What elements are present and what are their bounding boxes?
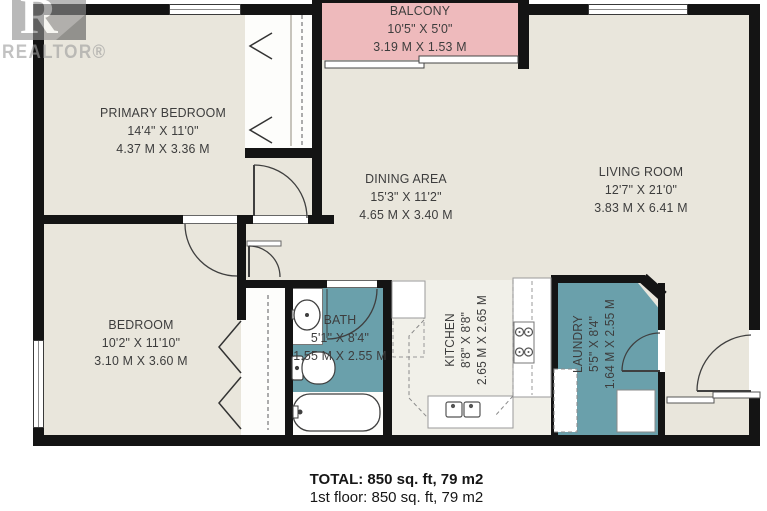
realtor-watermark: R REALTOR® bbox=[2, 0, 118, 64]
wall bbox=[518, 0, 529, 69]
room-dim-m: 3.83 M X 6.41 M bbox=[560, 199, 722, 217]
room-name: BALCONY bbox=[339, 2, 501, 20]
total-area: TOTAL: 850 sq. ft, 79 m2 bbox=[26, 471, 767, 489]
wall bbox=[749, 395, 760, 446]
room-dim-m: 4.65 M X 3.40 M bbox=[325, 206, 487, 224]
first-floor-area: 1st floor: 850 sq. ft, 79 m2 bbox=[26, 489, 767, 507]
room-name: DINING AREA bbox=[325, 170, 487, 188]
room-name: BEDROOM bbox=[60, 316, 222, 334]
room-dim-m: 4.37 M X 3.36 M bbox=[54, 140, 273, 158]
room-name: LIVING ROOM bbox=[560, 163, 722, 181]
wall bbox=[749, 4, 760, 330]
room-dim-m: 1.55 M X 2.55 M bbox=[274, 347, 407, 365]
wall bbox=[658, 372, 665, 435]
floorplan-canvas: BALCONY 10'5" X 5'0" 3.19 M X 1.53 M PRI… bbox=[0, 0, 767, 511]
room-dim-ft: 5'5" X 8'4" bbox=[586, 287, 602, 401]
wall bbox=[33, 435, 760, 446]
wall bbox=[551, 275, 558, 435]
room-label-kitchen: KITCHEN 8'8" X 8'8" 2.65 M X 2.65 M bbox=[442, 283, 490, 397]
entry-door-opening bbox=[749, 330, 760, 395]
window bbox=[169, 4, 241, 15]
wall bbox=[237, 215, 246, 320]
laundry-door-opening bbox=[658, 330, 665, 372]
room-dim-m: 1.64 M X 2.55 M bbox=[602, 287, 618, 401]
wall bbox=[551, 275, 645, 283]
window bbox=[588, 4, 688, 15]
realtor-logo-r: R bbox=[20, 0, 58, 40]
realtor-logo-triangle bbox=[56, 14, 86, 40]
room-dim-ft: 15'3" X 11'2" bbox=[325, 188, 487, 206]
room-dim-m: 3.10 M X 3.60 M bbox=[60, 352, 222, 370]
room-dim-m: 3.19 M X 1.53 M bbox=[339, 38, 501, 56]
room-label-living-room: LIVING ROOM 12'7" X 21'0" 3.83 M X 6.41 … bbox=[560, 163, 722, 217]
realtor-logo: R bbox=[12, 0, 86, 40]
wall bbox=[658, 283, 665, 330]
door-opening bbox=[183, 215, 237, 224]
room-dim-ft: 10'2" X 11'10" bbox=[60, 334, 222, 352]
window bbox=[33, 340, 44, 428]
room-label-balcony: BALCONY 10'5" X 5'0" 3.19 M X 1.53 M bbox=[339, 2, 501, 56]
room-label-laundry: LAUNDRY 5'5" X 8'4" 1.64 M X 2.55 M bbox=[570, 287, 618, 401]
room-name: KITCHEN bbox=[442, 283, 458, 397]
room-dim-ft: 5'1" X 8'4" bbox=[274, 329, 407, 347]
room-name: PRIMARY BEDROOM bbox=[54, 104, 273, 122]
room-dim-ft: 10'5" X 5'0" bbox=[339, 20, 501, 38]
wall bbox=[33, 215, 183, 224]
wall bbox=[312, 0, 322, 224]
realtor-wordmark: REALTOR® bbox=[2, 42, 106, 64]
room-label-primary-bedroom: PRIMARY BEDROOM 14'4" X 11'0" 4.37 M X 3… bbox=[54, 104, 273, 158]
wall bbox=[237, 280, 327, 288]
room-dim-m: 2.65 M X 2.65 M bbox=[474, 283, 490, 397]
room-label-dining-area: DINING AREA 15'3" X 11'2" 4.65 M X 3.40 … bbox=[325, 170, 487, 224]
room-name: LAUNDRY bbox=[570, 287, 586, 401]
bath-tub-area bbox=[292, 392, 383, 435]
room-label-bath: BATH 5'1" X 8'4" 1.55 M X 2.55 M bbox=[274, 311, 407, 365]
door-opening bbox=[253, 215, 308, 224]
room-dim-ft: 14'4" X 11'0" bbox=[54, 122, 273, 140]
door-opening bbox=[327, 280, 377, 288]
room-dim-ft: 8'8" X 8'8" bbox=[458, 283, 474, 397]
room-dim-ft: 12'7" X 21'0" bbox=[560, 181, 722, 199]
area-summary: TOTAL: 850 sq. ft, 79 m2 1st floor: 850 … bbox=[26, 471, 767, 507]
room-name: BATH bbox=[274, 311, 407, 329]
room-label-bedroom: BEDROOM 10'2" X 11'10" 3.10 M X 3.60 M bbox=[60, 316, 222, 370]
